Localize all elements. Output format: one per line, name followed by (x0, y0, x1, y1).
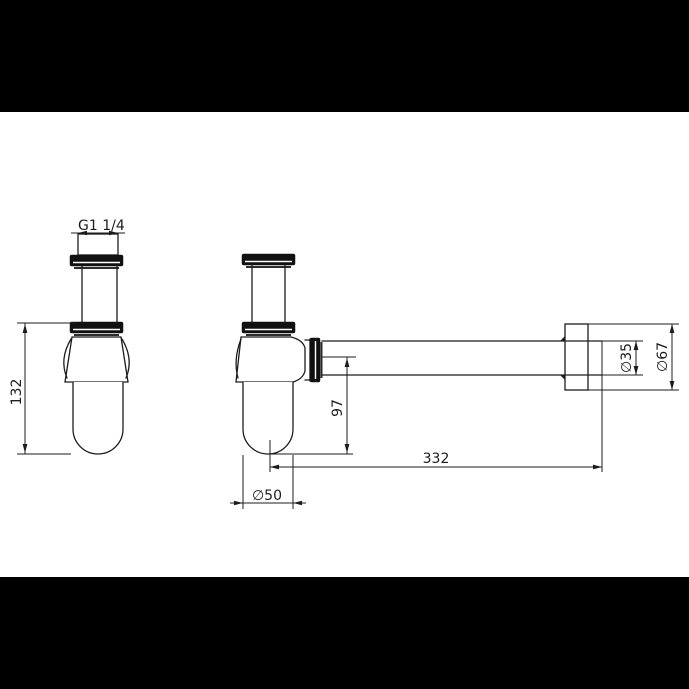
front-top-nut (70, 255, 123, 266)
side-cup (243, 382, 293, 454)
dim-drop-label: 97 (330, 399, 346, 417)
side-outlet-bell (291, 337, 305, 382)
dim-cup-label: ∅50 (252, 488, 282, 504)
dim-reach-label: 332 (423, 451, 450, 467)
dim-height-label: 132 (9, 379, 25, 406)
flange-chamfer-bottom (560, 375, 565, 380)
side-lower-nut (242, 322, 295, 333)
dim-thread: G1 1/4 (71, 218, 125, 235)
dim-pipe-label: ∅35 (619, 343, 635, 373)
front-view (64, 234, 129, 454)
side-view (236, 254, 602, 454)
dim-thread-label: G1 1/4 (78, 218, 125, 234)
screenshot-stage: G1 1/4 132 97 (0, 0, 689, 689)
front-ball-arc-left (64, 339, 71, 378)
dim-pipe-35: ∅35 (602, 341, 643, 375)
front-ball-arc-right (122, 339, 129, 378)
side-top-nut (242, 254, 295, 265)
dim-flange-label: ∅67 (655, 342, 671, 372)
dim-cup-50: ∅50 (230, 455, 306, 509)
dim-height-132: 132 (9, 323, 74, 454)
front-lower-nut (70, 322, 123, 333)
wall-flange (565, 324, 588, 390)
technical-drawing-canvas: G1 1/4 132 97 (0, 0, 689, 689)
flange-chamfer-top (560, 336, 565, 341)
front-cup (73, 382, 123, 454)
front-inlet-thread (78, 234, 118, 255)
